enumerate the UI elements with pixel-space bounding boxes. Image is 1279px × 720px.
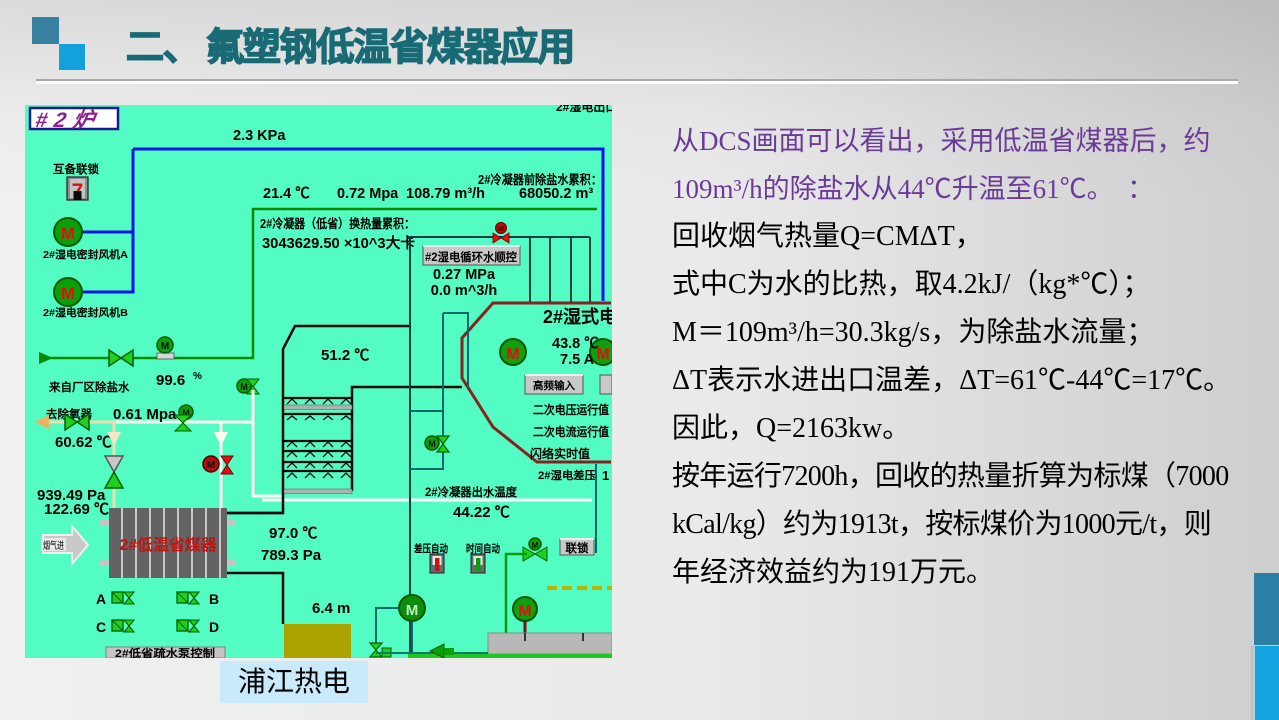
svg-text:D: D	[209, 619, 219, 635]
svg-text:C: C	[96, 619, 106, 635]
svg-text:2#湿电差压: 2#湿电差压	[538, 468, 596, 482]
svg-text:M: M	[406, 602, 419, 619]
svg-text:M: M	[61, 284, 75, 303]
svg-text:97.0 ℃: 97.0 ℃	[269, 525, 317, 542]
svg-text:B: B	[209, 591, 219, 607]
svg-text:M: M	[428, 439, 436, 449]
svg-text:2#湿电密封风机B: 2#湿电密封风机B	[43, 306, 128, 319]
svg-text:2#湿式电除尘: 2#湿式电除尘	[543, 306, 612, 327]
svg-text:差压自动: 差压自动	[414, 542, 448, 555]
svg-text:M: M	[240, 382, 248, 392]
svg-text:联锁: 联锁	[566, 541, 589, 555]
svg-text:60.62 ℃: 60.62 ℃	[55, 434, 112, 451]
svg-text:2#冷凝器（低省）换热量累积：: 2#冷凝器（低省）换热量累积：	[260, 216, 415, 231]
svg-text:#2湿电循环水顺控: #2湿电循环水顺控	[425, 250, 517, 264]
svg-text:2#低省疏水泵控制: 2#低省疏水泵控制	[115, 646, 215, 658]
svg-text:0.72 Mpa: 0.72 Mpa	[337, 186, 399, 202]
svg-text:1: 1	[602, 468, 609, 483]
svg-text:122.69 ℃: 122.69 ℃	[44, 501, 109, 518]
svg-text:M: M	[506, 346, 519, 363]
svg-text:43.8 ℃: 43.8 ℃	[552, 335, 599, 352]
svg-text:2#冷凝器出水温度: 2#冷凝器出水温度	[425, 485, 517, 499]
svg-text:M: M	[532, 541, 539, 550]
svg-text:99.6: 99.6	[156, 372, 185, 389]
svg-text:M: M	[207, 460, 215, 471]
svg-text:7.5 A: 7.5 A	[560, 352, 595, 368]
svg-text:M: M	[61, 224, 75, 243]
svg-text:2.3 KPa: 2.3 KPa	[233, 128, 286, 144]
svg-text:21.4 ℃: 21.4 ℃	[263, 185, 310, 202]
svg-text:6.4 m: 6.4 m	[312, 600, 350, 617]
svg-text:789.3 Pa: 789.3 Pa	[261, 547, 322, 564]
svg-text:2#冷凝器前除盐水累积：: 2#冷凝器前除盐水累积：	[478, 172, 602, 187]
svg-text:3043629.50 ×10^3大卡: 3043629.50 ×10^3大卡	[262, 234, 416, 252]
svg-text:二次电流运行值: 二次电流运行值	[533, 424, 609, 439]
svg-text:%: %	[193, 371, 202, 382]
svg-text:#2炉: #2炉	[34, 108, 104, 132]
svg-text:0.61 Mpa: 0.61 Mpa	[113, 406, 177, 423]
svg-text:烟气进: 烟气进	[43, 539, 64, 552]
svg-text:68050.2 m³: 68050.2 m³	[519, 186, 593, 202]
svg-text:2#湿电出口: 2#湿电出口	[556, 105, 612, 114]
svg-text:二次电压运行值: 二次电压运行值	[533, 402, 609, 417]
svg-text:2#湿电密封风机A: 2#湿电密封风机A	[43, 248, 128, 261]
svg-text:0.0 m^3/h: 0.0 m^3/h	[431, 283, 498, 299]
svg-text:M: M	[498, 226, 504, 233]
svg-text:M: M	[161, 341, 169, 352]
svg-text:A: A	[96, 591, 106, 607]
svg-text:高频输入: 高频输入	[533, 379, 575, 392]
svg-text:44.22 ℃: 44.22 ℃	[453, 504, 510, 521]
svg-text:51.2 ℃: 51.2 ℃	[321, 347, 369, 364]
svg-text:互备联锁: 互备联锁	[53, 162, 99, 176]
svg-text:时间自动: 时间自动	[466, 542, 500, 555]
svg-text:M: M	[518, 603, 531, 620]
svg-text:来自厂区除盐水: 来自厂区除盐水	[48, 380, 130, 394]
svg-text:0.27 MPa: 0.27 MPa	[433, 267, 496, 283]
svg-text:108.79 m³/h: 108.79 m³/h	[406, 186, 485, 202]
svg-text:2#低温省煤器: 2#低温省煤器	[120, 535, 218, 554]
svg-text:闪络实时值: 闪络实时值	[530, 446, 590, 461]
